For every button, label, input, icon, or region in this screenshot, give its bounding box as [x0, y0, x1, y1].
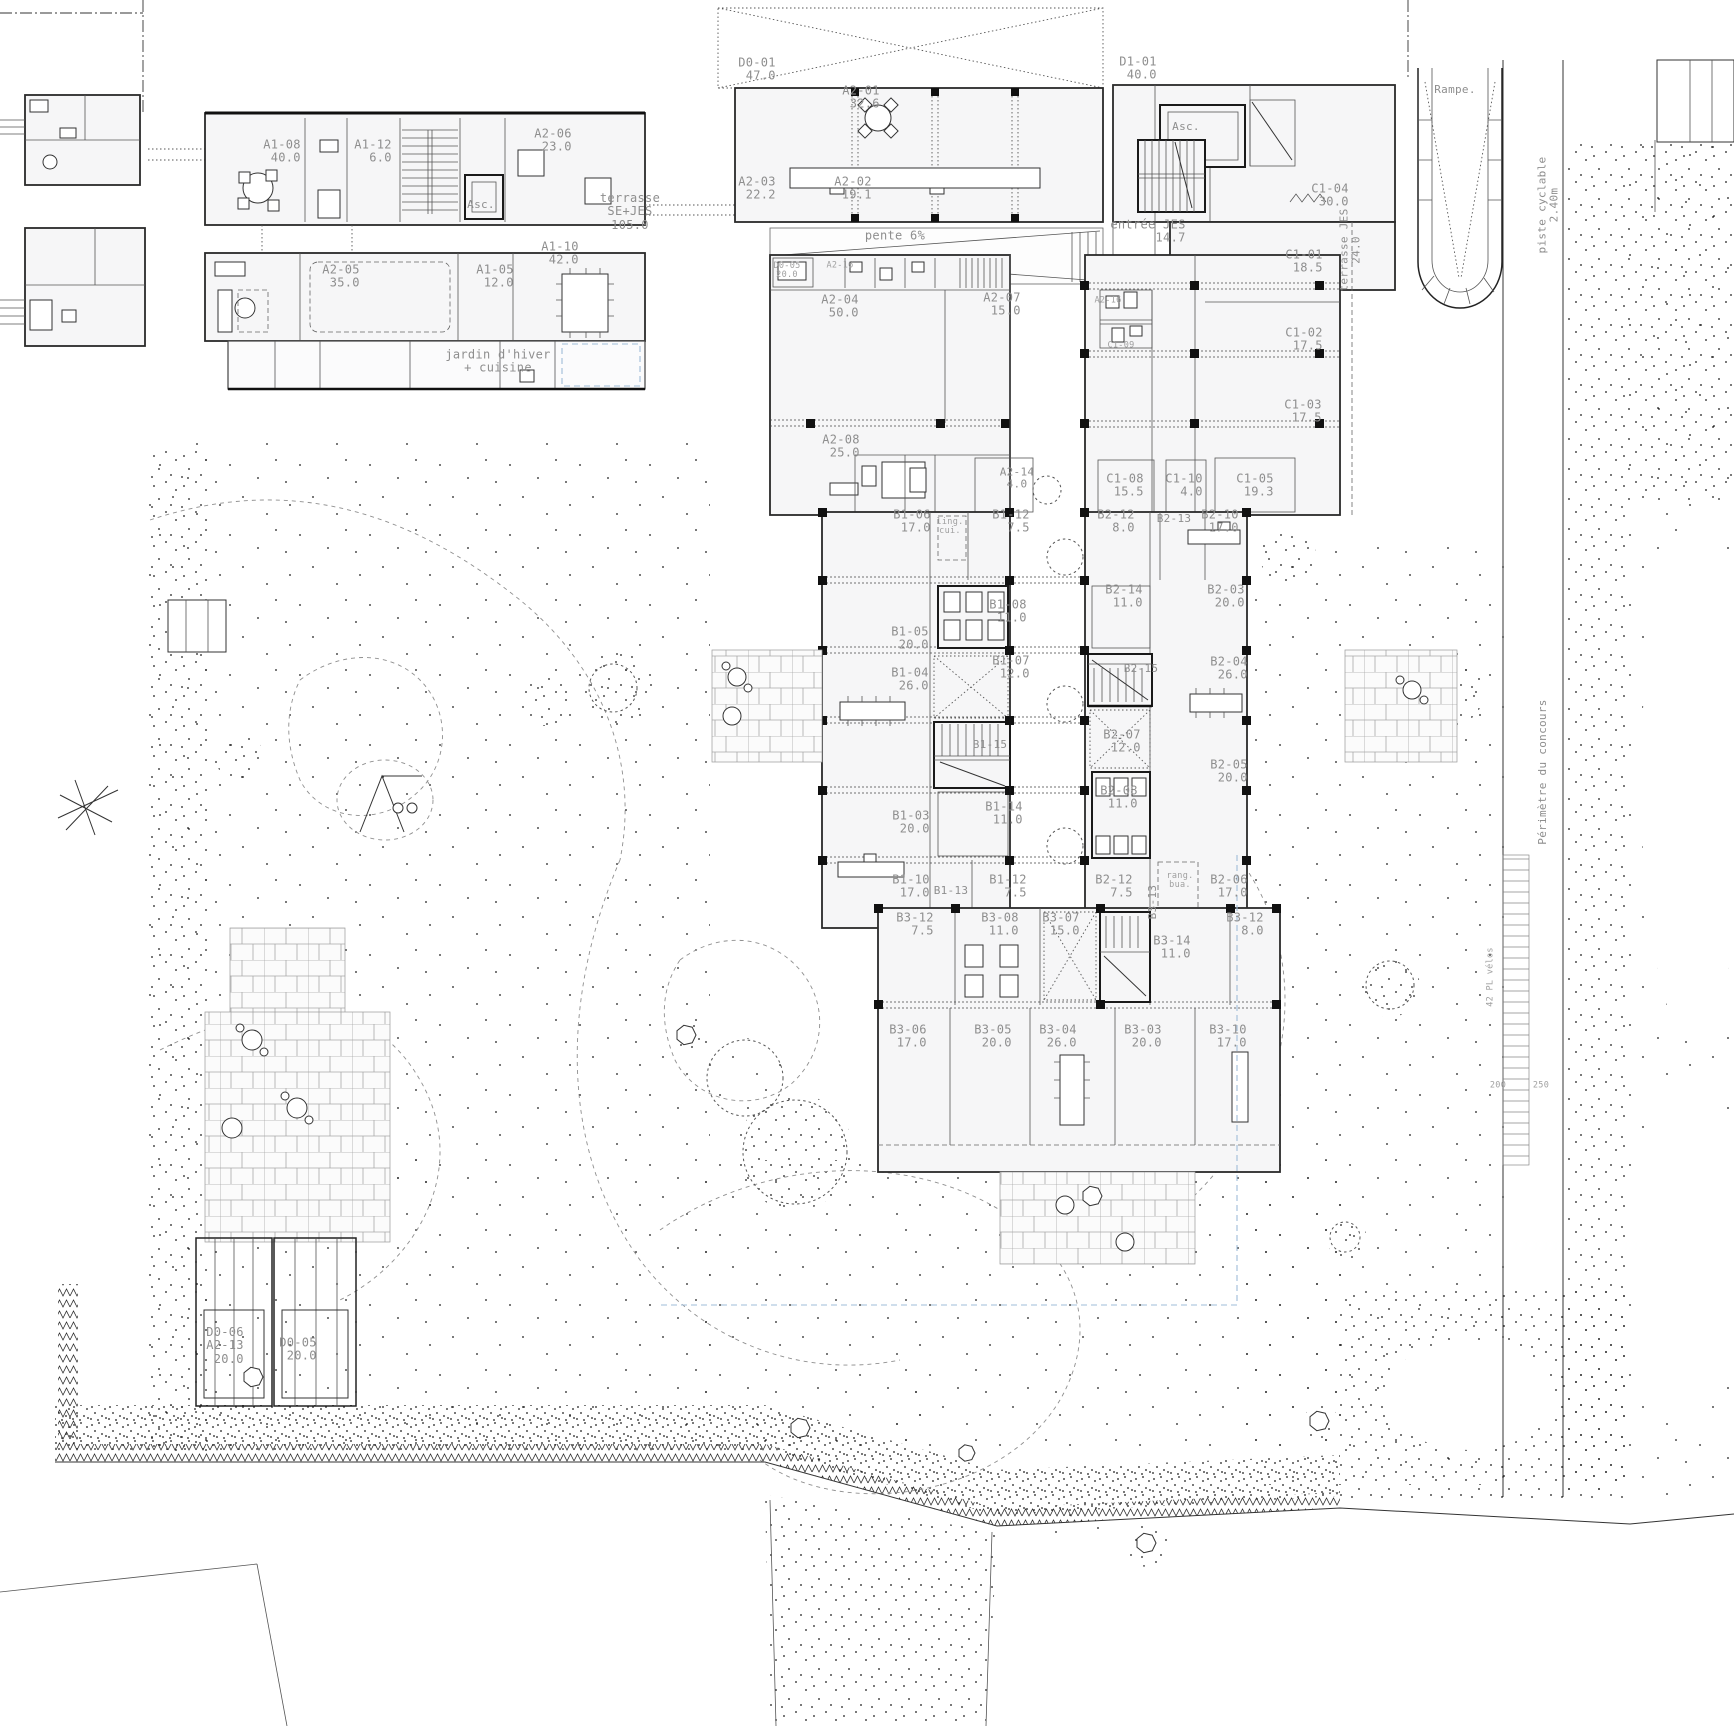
building-a-south-wing — [205, 205, 735, 389]
cafe-table — [1116, 1233, 1134, 1251]
long-counter — [790, 168, 1040, 188]
cafe-table — [287, 1098, 307, 1118]
cafe-table — [1403, 681, 1421, 699]
cafe-table — [1056, 1196, 1074, 1214]
building-center-north — [718, 8, 1103, 222]
desk-b2-10 — [1188, 530, 1240, 544]
winter-garden — [228, 341, 645, 389]
cafe-table — [728, 668, 746, 686]
square-table — [585, 178, 611, 204]
stair-east — [1138, 140, 1205, 212]
site-plan-drawing — [0, 0, 1734, 1726]
picnic-table — [168, 600, 226, 652]
cafe-table — [723, 707, 741, 725]
dining-table — [562, 274, 608, 332]
table-b2-04 — [1190, 694, 1242, 712]
building-d-entrance — [1113, 85, 1395, 222]
ramp — [1418, 68, 1502, 308]
counter-b3-10 — [1232, 1052, 1248, 1122]
bike-rack-strip — [1503, 855, 1529, 1165]
table-b1-04 — [840, 702, 905, 720]
block-b3 — [874, 904, 1281, 1172]
round-table — [865, 105, 891, 131]
floor-plan-canvas: A1-08 40.0A1-12 6.0A2-06 23.0Asc.A2-05 3… — [0, 0, 1734, 1726]
neighbor-building-left — [0, 95, 145, 346]
stair-b2-15 — [1088, 654, 1152, 706]
building-a-north-wing — [205, 113, 645, 253]
courtyard-trees — [1033, 476, 1083, 864]
sideboard-b1-10 — [838, 862, 904, 877]
table-b3-04 — [1060, 1055, 1084, 1125]
square-table — [518, 150, 544, 176]
climbing-logs — [58, 780, 118, 835]
stair-b3 — [1100, 912, 1150, 1002]
stair-b1-15 — [934, 722, 1010, 788]
cafe-table — [242, 1030, 262, 1050]
cafe-table — [222, 1118, 242, 1138]
